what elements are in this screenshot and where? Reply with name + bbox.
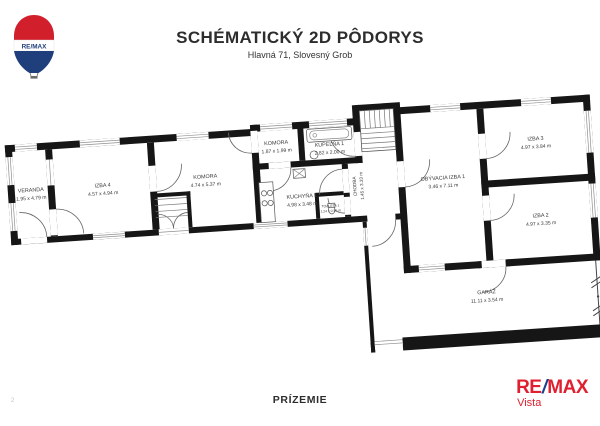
logo-re: RE xyxy=(516,377,541,398)
room-name-izba2: IZBA 2 xyxy=(532,213,549,220)
room-dims-kupelna: 2.82 x 2.00 m xyxy=(315,149,346,157)
remax-wordmark: RE/MAX xyxy=(516,378,588,397)
room-name-obyvacia: OBÝVACIA IZBA 1 xyxy=(420,173,465,183)
room-dims-veranda: 1.95 x 4.79 m xyxy=(16,195,47,203)
room-dims-obyvacia: 3.46 x 7.11 m xyxy=(428,182,458,190)
room-dims-komora-2: 1.87 x 1.99 m xyxy=(261,147,292,155)
page-number: 2 xyxy=(11,398,14,404)
room-name-veranda: VERANDA xyxy=(18,187,45,195)
room-dims-izba4: 4.57 x 4.94 m xyxy=(88,190,119,198)
room-name-komora-2: KOMORA xyxy=(264,140,289,148)
garage-open-edge xyxy=(590,260,600,325)
logo-vista: Vista xyxy=(516,398,588,409)
room-name-chodba: CHODBA xyxy=(352,175,358,196)
room-name-izba3: IZBA 3 xyxy=(527,136,544,143)
room-name-izba4: IZBA 4 xyxy=(94,182,111,189)
room-dims-komora: 4.74 x 5.37 m xyxy=(191,181,222,189)
room-dims-toaleta: 1.24 x 0.95 m xyxy=(320,208,341,213)
room-dims-izba3: 4.97 x 3.84 m xyxy=(521,143,552,151)
room-dims-garaz: 11.11 x 3.54 m xyxy=(471,297,504,305)
room-name-garaz: GARÁŽ xyxy=(477,287,497,296)
walls-layer xyxy=(4,90,600,376)
room-labels: VERANDA 1.95 x 4.79 m IZBA 4 4.57 x 4.94… xyxy=(13,122,561,334)
floor-plan: VERANDA 1.95 x 4.79 m IZBA 4 4.57 x 4.94… xyxy=(0,0,600,426)
staircase xyxy=(359,109,396,152)
floor-label: PRÍZEMIE xyxy=(0,394,600,406)
remax-vista-logo: RE/MAX Vista xyxy=(516,378,588,409)
floor-plan-page: RE/MAX SCHÉMATICKÝ 2D PÔDORYS Hlavná 71,… xyxy=(0,0,600,426)
room-dims-chodba: 1.45 x 3.33 m xyxy=(358,172,365,200)
room-dims-kuchyna: 4.98 x 3.48 m xyxy=(287,201,318,209)
room-dims-izba2: 4.97 x 3.35 m xyxy=(526,220,557,228)
room-name-komora: KOMORA xyxy=(193,173,218,181)
logo-max: MAX xyxy=(547,377,588,398)
room-name-kuchyna: KUCHYŇA 1 xyxy=(286,192,317,201)
